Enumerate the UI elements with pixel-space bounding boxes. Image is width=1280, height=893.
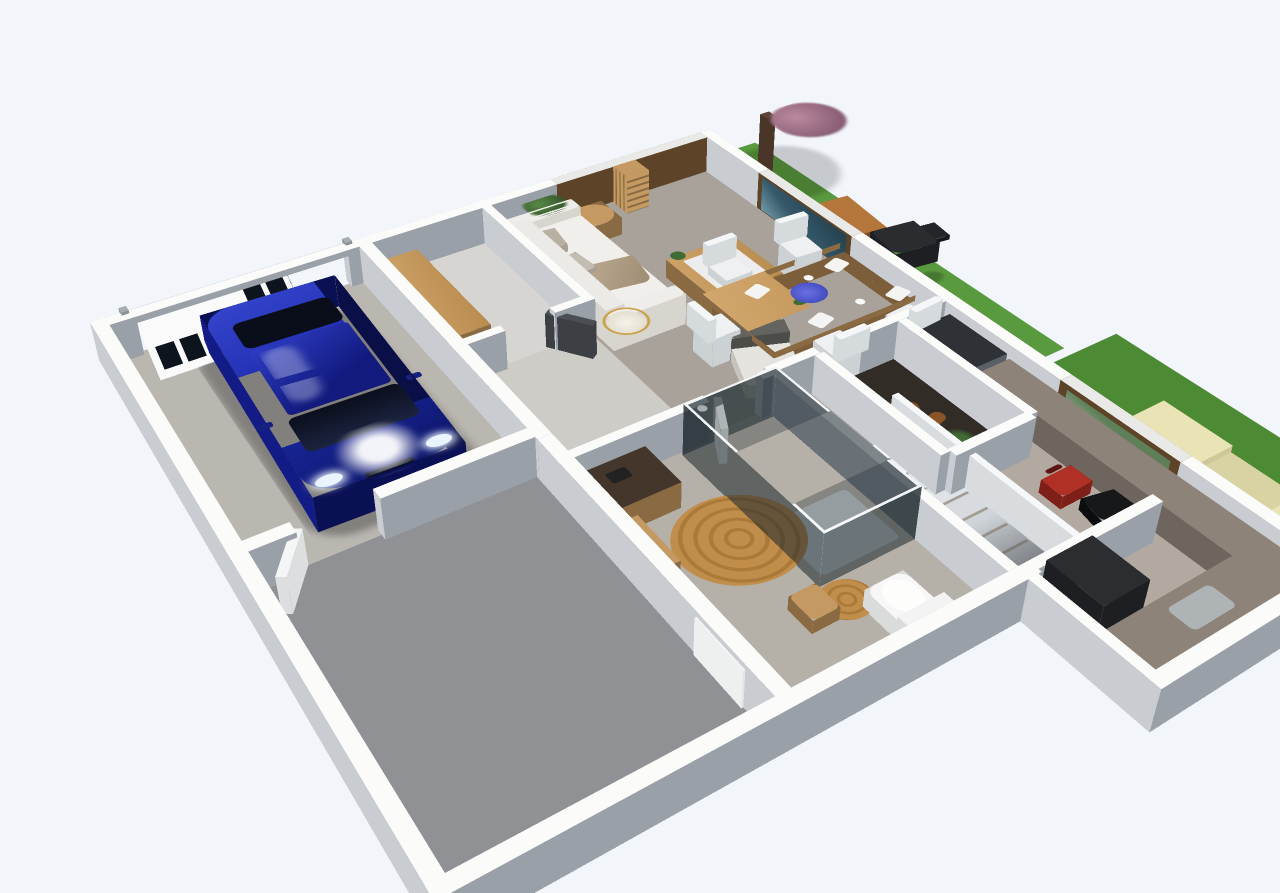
chair-back-face: [708, 319, 717, 344]
floorplan-3d-viewport[interactable]: [0, 0, 1280, 893]
